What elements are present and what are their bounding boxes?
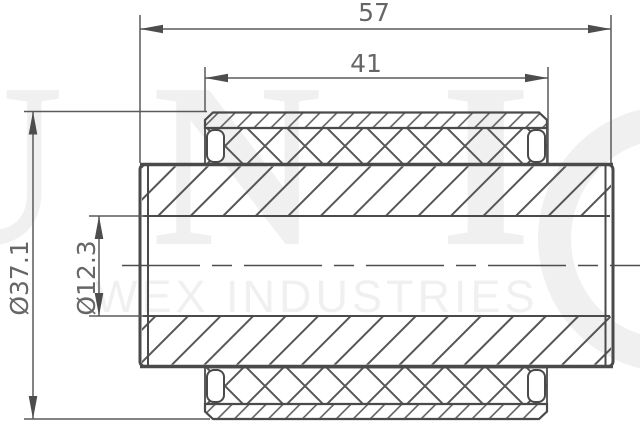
arrowhead-right: [525, 74, 548, 83]
arrowhead-top: [95, 216, 104, 239]
bushing-cross-section-drawing: 57 41 Ø37.1 Ø12.3: [0, 0, 640, 423]
arrowhead-left: [205, 74, 228, 83]
outer-band-top: [205, 113, 547, 129]
rubber-top: [205, 128, 547, 165]
arrowhead-bottom: [29, 396, 38, 419]
arrowhead-top: [29, 112, 38, 135]
outer-band-bottom: [205, 404, 547, 419]
dim-label-bore-diameter: Ø12.3: [72, 240, 101, 315]
part-outline: [122, 113, 640, 420]
arrowhead-left: [140, 25, 163, 34]
rubber-top-right-cap: [528, 130, 545, 162]
rubber-bottom: [205, 368, 547, 405]
dim-label-overall-length: 57: [358, 0, 390, 27]
tube-wall-hatch-top: [142, 167, 611, 216]
rubber-top-left-cap: [207, 130, 224, 162]
tube-wall-hatch-bottom: [142, 317, 611, 365]
rubber-bottom-left-cap: [207, 370, 224, 402]
dim-label-outer-diameter: Ø37.1: [5, 240, 34, 315]
rubber-bottom-right-cap: [528, 370, 545, 402]
arrowhead-right: [588, 25, 611, 34]
technical-drawing-canvas: U N I WEX INDUSTRIES: [0, 0, 640, 423]
dim-label-rubber-length: 41: [350, 49, 382, 78]
